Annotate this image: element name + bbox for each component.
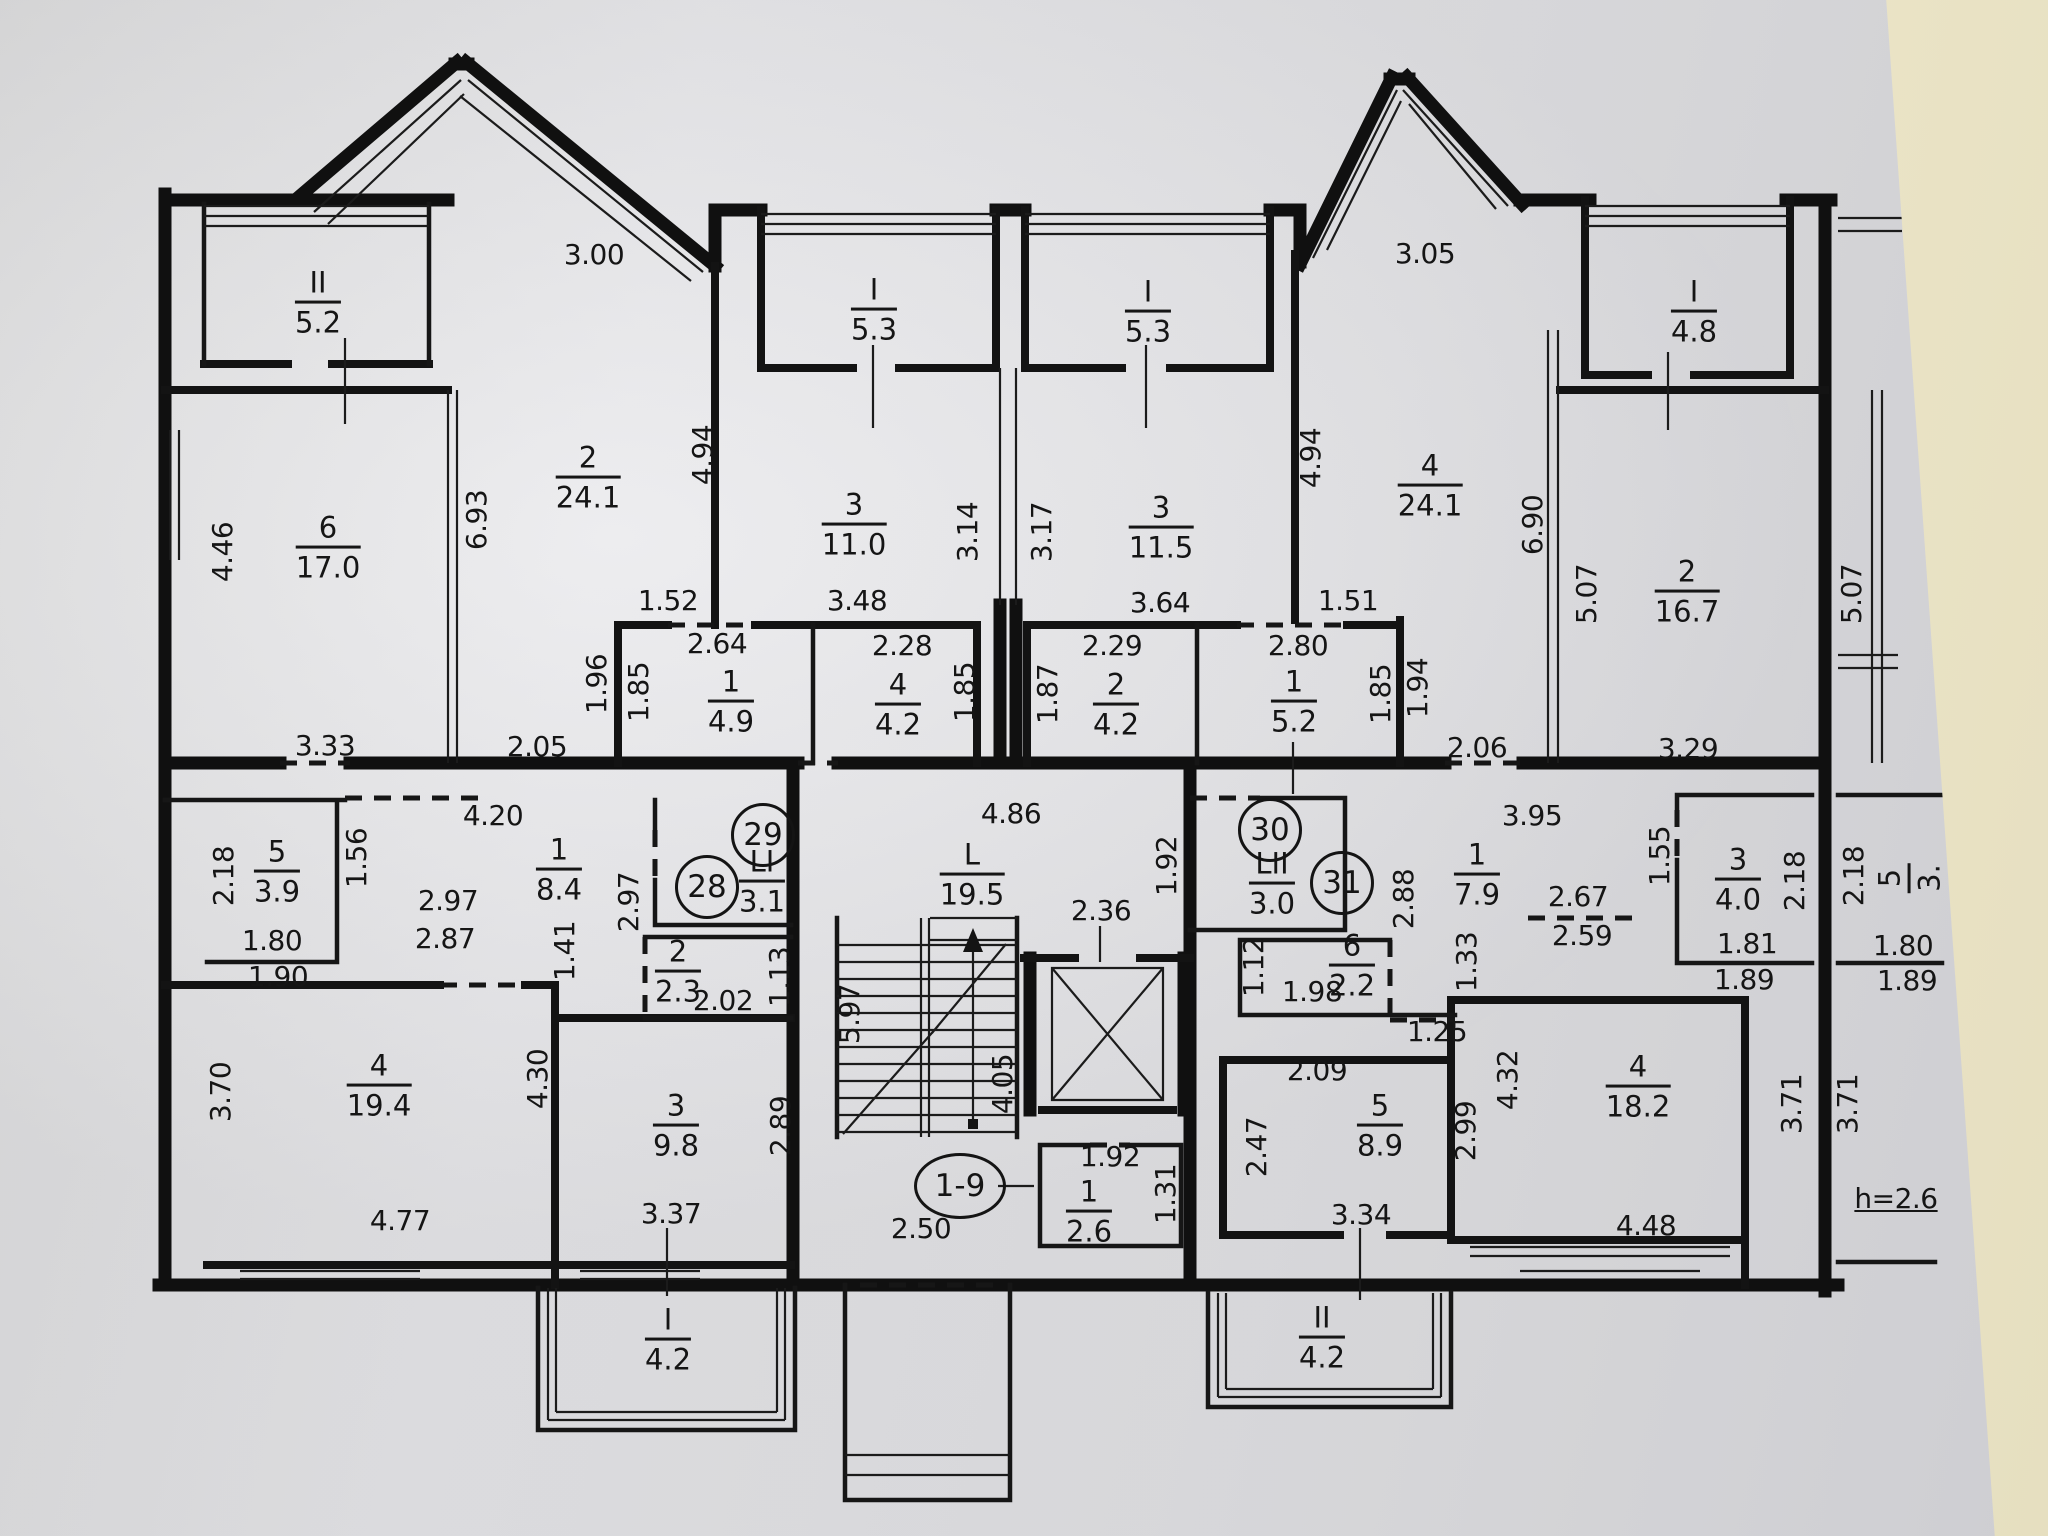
dim: 2.64 <box>687 630 747 658</box>
room-label-2-4.2: 24.2 <box>1093 670 1139 741</box>
dim: 2.18 <box>1840 846 1868 906</box>
dim: 2.99 <box>1452 1101 1480 1161</box>
dim: 3.95 <box>1502 802 1562 830</box>
dim: 5.07 <box>1838 564 1866 624</box>
dim: 3.05 <box>1395 240 1455 268</box>
dim: 2.18 <box>1781 851 1809 911</box>
dim: 4.46 <box>209 522 237 582</box>
dim: 1.56 <box>343 828 371 888</box>
dim: 4.94 <box>689 425 717 485</box>
room-label-3-11.0: 311.0 <box>822 490 887 561</box>
dim: 2.06 <box>1447 734 1507 762</box>
dim: 1.52 <box>638 587 698 615</box>
dim: 3.17 <box>1028 502 1056 562</box>
dim: 1.89 <box>1714 966 1774 994</box>
room-label-1-2.6: 12.6 <box>1066 1177 1112 1248</box>
paper-sheet: II5.2 I5.3 I5.3 I4.8 617.0 224.1 311.0 3… <box>0 0 2048 1536</box>
label-layer: II5.2 I5.3 I5.3 I4.8 617.0 224.1 311.0 3… <box>0 0 2048 1536</box>
entrance-units-circle: 1-9 <box>914 1153 1006 1219</box>
dim: 1.85 <box>951 662 979 722</box>
dim: 2.87 <box>415 925 475 953</box>
dim: 1.87 <box>1034 664 1062 724</box>
dim: 4.30 <box>524 1049 552 1109</box>
dim: 1.80 <box>242 927 302 955</box>
dim: 3.00 <box>564 241 624 269</box>
dim: 2.36 <box>1071 897 1131 925</box>
dim: 2.80 <box>1268 632 1328 660</box>
dim: 4.86 <box>981 800 1041 828</box>
dim: 1.92 <box>1080 1143 1140 1171</box>
dim: 1.51 <box>1318 587 1378 615</box>
dim: 4.32 <box>1494 1050 1522 1110</box>
dim: 1.81 <box>1717 930 1777 958</box>
dim: 1.31 <box>1152 1164 1180 1224</box>
dim: 2.50 <box>891 1215 951 1243</box>
room-label-1-4.9: 14.9 <box>708 667 754 738</box>
dim: 4.94 <box>1297 428 1325 488</box>
dim: 1.90 <box>248 963 308 991</box>
dim: 3.37 <box>641 1200 701 1228</box>
dim: 6.90 <box>1519 495 1547 555</box>
dim: 1.80 <box>1873 932 1933 960</box>
dim: 2.97 <box>418 887 478 915</box>
room-label-loggia-I-5.3-right: I5.3 <box>1125 277 1171 348</box>
apartment-circle-29: 29 <box>731 803 795 867</box>
dim: 1.55 <box>1646 826 1674 886</box>
room-label-4-19.4: 419.4 <box>347 1051 412 1122</box>
dim: 2.97 <box>615 872 643 932</box>
dim: 2.09 <box>1287 1057 1347 1085</box>
room-label-stairs-L-19.5: L19.5 <box>940 840 1005 911</box>
room-label-clipped-right: 53. <box>1875 863 1946 893</box>
dim: 4.05 <box>989 1054 1017 1114</box>
room-label-6-17.0: 617.0 <box>296 513 361 584</box>
dim: 3.34 <box>1331 1201 1391 1229</box>
dim: 5.07 <box>1573 564 1601 624</box>
dim: 1.33 <box>1453 932 1481 992</box>
room-label-3-9.8: 39.8 <box>653 1091 699 1162</box>
room-label-4-24.1: 424.1 <box>1398 451 1463 522</box>
room-label-3-11.5: 311.5 <box>1129 493 1194 564</box>
dim: 5.97 <box>836 984 864 1044</box>
dim: 4.20 <box>463 802 523 830</box>
room-label-balcony-II-5.2: II5.2 <box>295 268 341 339</box>
room-label-5-8.9: 58.9 <box>1357 1091 1403 1162</box>
apartment-circle-31: 31 <box>1310 851 1374 915</box>
dim: 1.12 <box>1240 937 1268 997</box>
dim: 3.71 <box>1778 1074 1806 1134</box>
dim: 2.88 <box>1390 869 1418 929</box>
room-label-balcony-II-4.2: II4.2 <box>1299 1303 1345 1374</box>
dim: 1.25 <box>1407 1018 1467 1046</box>
dim: 3.14 <box>954 502 982 562</box>
dim: 3.29 <box>1658 735 1718 763</box>
dim: 3.70 <box>207 1062 235 1122</box>
dim: 1.41 <box>551 921 579 981</box>
room-label-1-5.2: 15.2 <box>1271 667 1317 738</box>
dim: 4.77 <box>370 1207 430 1235</box>
dim: 2.47 <box>1243 1117 1271 1177</box>
dim: 1.13 <box>766 947 794 1007</box>
ceiling-height-note: h=2.6 <box>1854 1185 1937 1213</box>
dim: 1.89 <box>1877 967 1937 995</box>
dim: 2.59 <box>1552 922 1612 950</box>
dim: 2.28 <box>872 632 932 660</box>
room-label-loggia-I-5.3-left: I5.3 <box>851 275 897 346</box>
floor-plan-photo: II5.2 I5.3 I5.3 I4.8 617.0 224.1 311.0 3… <box>0 0 2048 1536</box>
room-label-2-24.1: 224.1 <box>556 443 621 514</box>
dim: 1.85 <box>625 662 653 722</box>
dim: 4.48 <box>1616 1212 1676 1240</box>
dim: 3.33 <box>295 732 355 760</box>
dim: 3.48 <box>827 587 887 615</box>
dim: 1.98 <box>1282 978 1342 1006</box>
dim: 1.96 <box>583 654 611 714</box>
dim: 2.05 <box>507 733 567 761</box>
dim: 6.93 <box>463 490 491 550</box>
room-label-2-16.7: 216.7 <box>1655 557 1720 628</box>
room-label-balcony-I-4.8: I4.8 <box>1671 277 1717 348</box>
dim: 3.64 <box>1130 589 1190 617</box>
dim: 2.02 <box>693 987 753 1015</box>
dim: 1.94 <box>1404 658 1432 718</box>
room-label-1-8.4: 18.4 <box>536 835 582 906</box>
room-label-3-4.0: 34.0 <box>1715 845 1761 916</box>
room-label-4-4.2: 44.2 <box>875 670 921 741</box>
dim: 2.18 <box>210 846 238 906</box>
room-label-balcony-I-4.2: I4.2 <box>645 1305 691 1376</box>
apartment-circle-28: 28 <box>675 855 739 919</box>
dim: 2.67 <box>1548 883 1608 911</box>
dim: 2.89 <box>767 1096 795 1156</box>
room-label-1-7.9: 17.9 <box>1454 840 1500 911</box>
room-label-4-18.2: 418.2 <box>1606 1052 1671 1123</box>
dim: 1.85 <box>1367 664 1395 724</box>
apartment-circle-30: 30 <box>1238 798 1302 862</box>
dim: 3.71 <box>1834 1074 1862 1134</box>
dim: 2.29 <box>1082 632 1142 660</box>
room-label-5-3.9: 53.9 <box>254 837 300 908</box>
dim: 1.92 <box>1153 836 1181 896</box>
